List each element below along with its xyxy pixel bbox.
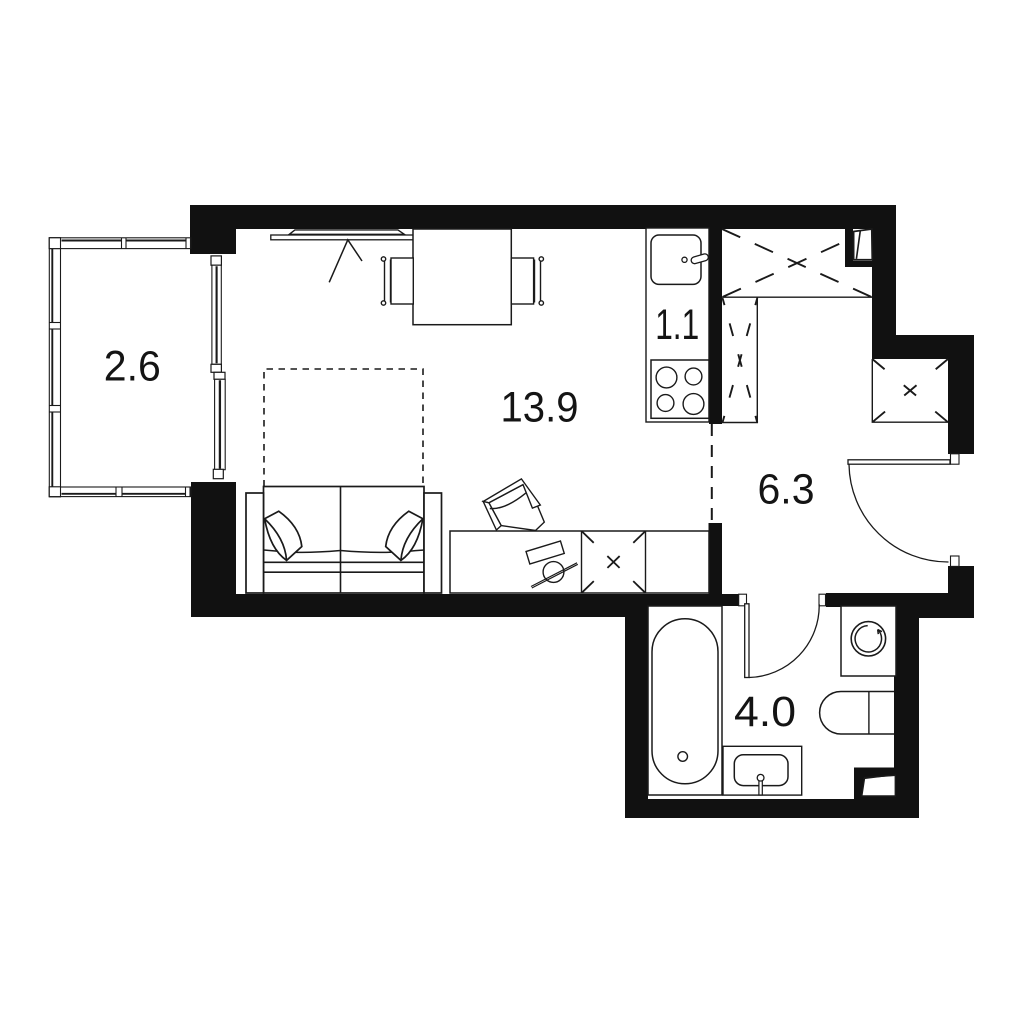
svg-text:4.0: 4.0 [734,688,796,736]
svg-text:6.3: 6.3 [758,465,815,513]
svg-text:2.6: 2.6 [104,343,161,391]
svg-text:1.1: 1.1 [655,301,699,349]
svg-text:13.9: 13.9 [501,383,579,431]
